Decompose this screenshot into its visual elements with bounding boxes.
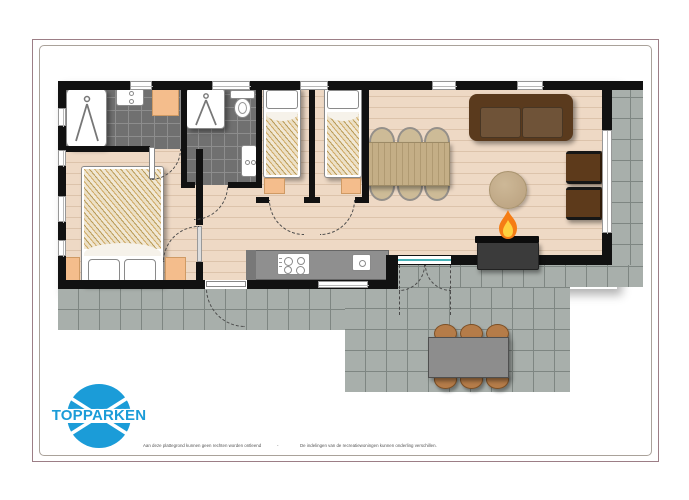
window-icon bbox=[300, 81, 328, 90]
fireplace-body bbox=[477, 242, 539, 270]
armchair-icon bbox=[566, 187, 603, 220]
wall-bathrooms-divider bbox=[181, 87, 187, 185]
floorplan-page: TOPPARKEN Aan deze plattegrond kunnen ge… bbox=[0, 0, 689, 500]
logo-text: TOPPARKEN bbox=[44, 408, 154, 424]
duvet bbox=[84, 169, 161, 249]
wall-bedroom2-east bbox=[362, 90, 369, 203]
door-swing-guide bbox=[450, 265, 451, 315]
window-icon bbox=[58, 108, 66, 126]
wall-bathroom2-east bbox=[256, 87, 262, 188]
rug-icon bbox=[489, 171, 527, 209]
pillow-icon bbox=[327, 90, 359, 109]
window-icon bbox=[58, 196, 66, 222]
wall-master-east-b bbox=[196, 262, 203, 289]
wall-bathroom2-south-a bbox=[181, 182, 195, 188]
flame-icon bbox=[497, 210, 519, 240]
window-icon bbox=[432, 81, 456, 90]
disclaimer-right: De indelingen van de recreatiewoningen k… bbox=[300, 443, 437, 448]
kitchen-counter-end bbox=[246, 250, 256, 280]
footer: Aan deze plattegrond kunnen geen rechten… bbox=[0, 440, 689, 454]
nightstand-icon bbox=[341, 178, 361, 194]
kitchen-sink-icon bbox=[352, 254, 371, 271]
pillow-icon bbox=[266, 90, 298, 109]
duvet bbox=[327, 112, 359, 175]
dining-table-icon bbox=[366, 142, 450, 186]
disclaimer-separator: - bbox=[277, 443, 278, 448]
sliding-door-icon bbox=[602, 130, 612, 233]
toilet-icon bbox=[230, 90, 256, 120]
entrance-door-leaf bbox=[206, 281, 246, 287]
wall-bathroom1-south bbox=[58, 146, 150, 152]
window-icon bbox=[130, 81, 152, 90]
wardrobe-icon bbox=[152, 88, 179, 116]
stove-icon bbox=[277, 253, 310, 275]
window-icon bbox=[517, 81, 543, 90]
shower-icon bbox=[66, 88, 107, 148]
window-icon bbox=[212, 81, 250, 90]
wall-bedroom-stub-c bbox=[355, 197, 369, 203]
sofa-icon bbox=[469, 94, 573, 141]
armchair-icon bbox=[566, 151, 603, 184]
wall-bedroom-stub-b bbox=[304, 197, 320, 203]
shower-icon bbox=[186, 88, 225, 129]
window-icon bbox=[58, 150, 66, 166]
terrace-strip-south bbox=[58, 287, 345, 330]
door-swing-guide bbox=[399, 265, 400, 315]
sliding-door bbox=[398, 256, 451, 264]
terrace-strip-east bbox=[610, 90, 643, 265]
nightstand-icon bbox=[264, 178, 285, 194]
sink-icon bbox=[116, 88, 144, 106]
outdoor-table-icon bbox=[428, 337, 509, 378]
disclaimer-left: Aan deze plattegrond kunnen geen rechten… bbox=[143, 443, 261, 448]
window-icon bbox=[318, 281, 368, 288]
window-icon bbox=[58, 240, 66, 256]
duvet bbox=[266, 112, 298, 175]
wall-bedrooms-divider bbox=[309, 90, 315, 203]
washing-machine-icon bbox=[241, 145, 257, 177]
wall-bedroom-stub-a bbox=[256, 197, 269, 203]
